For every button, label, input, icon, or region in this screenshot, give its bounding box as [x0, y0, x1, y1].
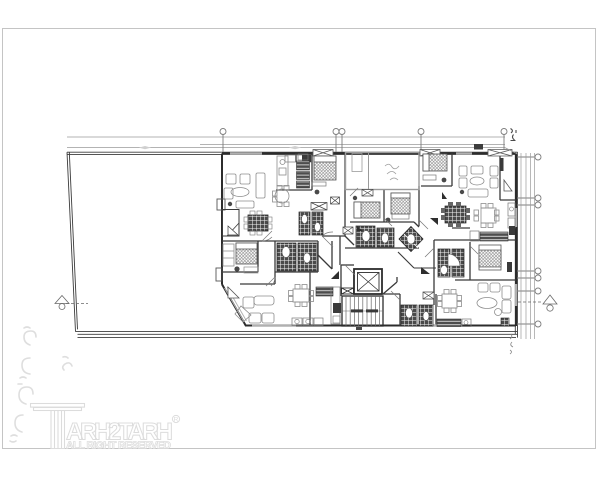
svg-text:ALL RIGHT RESERVED: ALL RIGHT RESERVED: [66, 440, 171, 452]
svg-text:R: R: [174, 417, 179, 424]
